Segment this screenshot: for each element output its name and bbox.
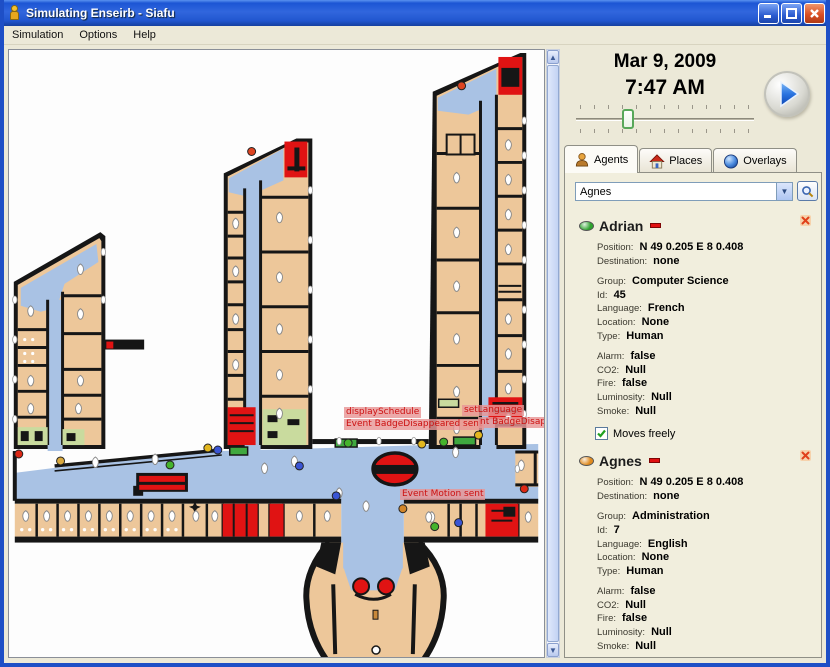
door-oval <box>412 437 416 445</box>
slider-thumb[interactable] <box>622 109 634 129</box>
agent-header: Adrian <box>579 217 815 234</box>
door-oval <box>515 465 519 473</box>
menu-simulation[interactable]: Simulation <box>4 27 71 43</box>
door-marker <box>148 511 154 522</box>
door-marker <box>44 511 50 522</box>
door-marker <box>65 511 71 522</box>
map-event-label: Event Motion sent <box>400 489 485 500</box>
moves-freely-checkbox[interactable] <box>595 427 608 440</box>
door-marker <box>296 511 302 522</box>
agent-dot[interactable] <box>431 523 439 531</box>
door-oval <box>522 187 526 195</box>
agent-field-row: Smoke:Null <box>597 640 815 654</box>
door-marker <box>233 218 239 229</box>
tab-agents[interactable]: Agents <box>564 145 638 173</box>
menu-help[interactable]: Help <box>125 27 164 43</box>
person-icon <box>574 152 590 167</box>
agent-field-row: Luminosity:Null <box>597 626 815 640</box>
door-marker <box>505 349 511 360</box>
door-oval <box>522 221 526 229</box>
agent-selector-value: Agnes <box>576 186 776 198</box>
door-marker <box>233 359 239 370</box>
agent-dot[interactable] <box>57 457 65 465</box>
close-agent-icon[interactable] <box>800 450 811 461</box>
agent-dot[interactable] <box>204 444 212 452</box>
title-bar[interactable]: Simulating Enseirb - Siafu <box>0 0 830 26</box>
door-marker <box>28 375 34 386</box>
slider-ticks-top <box>580 105 750 109</box>
door-marker <box>106 511 112 522</box>
door-marker <box>363 501 369 512</box>
agent-field-row: Fire:false <box>597 377 815 391</box>
simulation-time: 7:47 AM <box>574 76 756 100</box>
door-marker <box>505 383 511 394</box>
door-oval <box>308 336 312 344</box>
maximize-button-icon[interactable] <box>781 3 802 24</box>
door-oval <box>308 386 312 394</box>
door-marker <box>127 511 133 522</box>
door-marker <box>505 140 511 151</box>
simulation-map[interactable]: displayScheduleEvent BadgeDisappeared se… <box>8 49 545 658</box>
door-marker <box>276 369 282 380</box>
agent-field-row: Destination:none <box>597 490 815 504</box>
agent-field-row: Position:N 49 0.205 E 8 0.408 <box>597 476 815 490</box>
slider-ticks-bottom <box>580 129 750 133</box>
door-marker <box>525 512 531 523</box>
agent-dot[interactable] <box>344 439 352 447</box>
map-event-label: Event BadgeDisappeared sent <box>344 419 484 430</box>
agent-fields: Position:N 49 0.205 E 8 0.408Destination… <box>579 469 815 653</box>
agent-field-row: Id:45 <box>597 289 815 303</box>
window-title: Simulating Enseirb - Siafu <box>26 6 175 20</box>
door-oval <box>13 415 17 423</box>
door-oval <box>337 437 341 445</box>
chevron-down-icon[interactable]: ▼ <box>776 183 792 200</box>
agent-dot[interactable] <box>520 485 528 493</box>
door-marker <box>233 266 239 277</box>
door-marker <box>453 447 459 458</box>
tab-agents-label: Agents <box>594 154 628 166</box>
tab-places-label: Places <box>669 155 702 167</box>
tab-bar: Agents Places Overlays <box>564 145 822 173</box>
door-marker <box>233 314 239 325</box>
agent-dot[interactable] <box>295 462 303 470</box>
door-oval <box>101 296 105 304</box>
agent-dot[interactable] <box>440 438 448 446</box>
door-marker <box>77 375 83 386</box>
agent-running-badge <box>650 223 661 228</box>
moves-freely-row: Moves freely <box>579 425 815 442</box>
agent-card-adrian: Adrian Position:N 49 0.205 E 8 0.408Dest… <box>565 209 821 444</box>
door-marker <box>505 314 511 325</box>
control-panel: Mar 9, 2009 7:47 AM Agents <box>560 45 826 663</box>
agent-fields: Position:N 49 0.205 E 8 0.408Destination… <box>579 234 815 418</box>
map-vertical-scrollbar[interactable]: ▲ ▼ <box>546 49 560 658</box>
agent-header: Agnes <box>579 452 815 469</box>
agent-status-icon <box>579 221 594 231</box>
menu-options[interactable]: Options <box>71 27 125 43</box>
agent-field-row: CO2:Null <box>597 599 815 613</box>
play-button[interactable] <box>764 71 810 117</box>
map-event-label: nt BadgeDisapp <box>478 417 545 428</box>
agent-dot[interactable] <box>399 505 407 513</box>
door-marker <box>77 309 83 320</box>
door-oval <box>101 248 105 256</box>
door-oval <box>13 296 17 304</box>
moves-freely-label: Moves freely <box>613 428 675 440</box>
door-marker <box>505 244 511 255</box>
door-marker <box>85 511 91 522</box>
agent-dot[interactable] <box>166 461 174 469</box>
search-button[interactable] <box>797 181 818 201</box>
agent-field-row: Language:French <box>597 302 815 316</box>
agent-running-badge <box>649 458 660 463</box>
agent-status-icon <box>579 456 594 466</box>
door-oval <box>522 341 526 349</box>
minimize-button-icon[interactable] <box>758 3 779 24</box>
app-window: Simulating Enseirb - Siafu Simulation Op… <box>0 0 830 667</box>
agent-card-agnes: Agnes Position:N 49 0.205 E 8 0.408Desti… <box>565 444 821 657</box>
door-oval <box>522 306 526 314</box>
agent-field-row: Alarm:false <box>597 585 815 599</box>
door-oval <box>308 286 312 294</box>
slider-track[interactable] <box>576 118 754 121</box>
door-marker <box>324 511 330 522</box>
door-marker <box>77 264 83 275</box>
agent-field-row: Alarm:false <box>597 350 815 364</box>
agent-dot[interactable] <box>332 492 340 500</box>
search-icon <box>801 185 814 198</box>
tab-places[interactable]: Places <box>639 148 712 173</box>
door-marker <box>276 324 282 335</box>
agent-dot[interactable] <box>475 431 483 439</box>
time-speed-slider[interactable] <box>576 103 754 135</box>
scroll-down-icon[interactable]: ▼ <box>547 643 559 657</box>
agent-field-row: Location:None <box>597 551 815 565</box>
close-agent-icon[interactable] <box>800 215 811 226</box>
door-marker <box>28 306 34 317</box>
agent-field-row: CO2:Null <box>597 364 815 378</box>
door-marker <box>276 212 282 223</box>
agent-field-row: Type:Human <box>597 330 815 344</box>
agents-tab-panel: Agnes ▼ Adrian <box>564 172 822 658</box>
close-button-icon[interactable] <box>804 3 825 24</box>
scroll-up-icon[interactable]: ▲ <box>547 50 559 64</box>
agent-field-row: Id:7 <box>597 524 815 538</box>
agent-field-row: Group:Computer Science <box>597 275 815 289</box>
agent-field-row: Type:Human <box>597 565 815 579</box>
door-oval <box>522 256 526 264</box>
door-marker <box>276 272 282 283</box>
door-marker <box>454 386 460 397</box>
door-oval <box>13 376 17 384</box>
door-marker <box>505 209 511 220</box>
agent-name: Adrian <box>599 218 643 234</box>
agent-dot[interactable] <box>455 519 463 527</box>
door-oval <box>308 187 312 195</box>
door-marker <box>426 512 432 523</box>
agent-field-row: Group:Administration <box>597 510 815 524</box>
agent-field-row: Smoke:Null <box>597 405 815 419</box>
door-oval <box>522 152 526 160</box>
agent-list: Adrian Position:N 49 0.205 E 8 0.408Dest… <box>565 209 821 657</box>
map-event-label: setLanguage <box>462 405 524 416</box>
tab-overlays[interactable]: Overlays <box>713 148 796 173</box>
agent-field-row: Fire:false <box>597 612 815 626</box>
agent-field-row: Luminosity:Null <box>597 391 815 405</box>
door-oval <box>377 437 381 445</box>
door-marker <box>454 172 460 183</box>
agent-dot[interactable] <box>418 440 426 448</box>
door-marker <box>92 457 98 468</box>
door-marker <box>193 511 199 522</box>
door-oval <box>308 236 312 244</box>
agent-dot[interactable] <box>15 450 23 458</box>
door-oval <box>522 376 526 384</box>
play-icon <box>772 79 802 109</box>
agent-dot[interactable] <box>458 82 466 90</box>
agent-dot[interactable] <box>214 446 222 454</box>
door-marker <box>454 227 460 238</box>
agent-field-row: Destination:none <box>597 255 815 269</box>
door-marker <box>454 281 460 292</box>
door-marker <box>454 334 460 345</box>
door-marker <box>23 511 29 522</box>
agent-field-row: Location:None <box>597 316 815 330</box>
door-marker <box>28 403 34 414</box>
door-marker <box>262 463 268 474</box>
agent-field-row: Language:English <box>597 538 815 552</box>
agent-dot[interactable] <box>248 148 256 156</box>
door-oval <box>522 117 526 125</box>
door-marker <box>212 511 218 522</box>
house-icon <box>649 154 665 169</box>
agent-field-row: Position:N 49 0.205 E 8 0.408 <box>597 241 815 255</box>
door-marker <box>75 403 81 414</box>
agent-name: Agnes <box>599 453 642 469</box>
map-event-label: displaySchedule <box>344 407 421 418</box>
sphere-icon <box>723 154 739 169</box>
agent-selector-combobox[interactable]: Agnes ▼ <box>575 182 793 201</box>
floorplan-canvas <box>9 50 544 657</box>
simulation-date: Mar 9, 2009 <box>574 51 756 73</box>
door-marker <box>169 511 175 522</box>
door-marker <box>276 408 282 419</box>
door-oval <box>13 336 17 344</box>
door-marker <box>152 454 158 465</box>
menu-bar: Simulation Options Help <box>4 26 826 45</box>
scrollbar-thumb[interactable] <box>547 65 559 642</box>
app-icon <box>7 5 21 21</box>
door-marker <box>505 174 511 185</box>
tab-overlays-label: Overlays <box>743 155 786 167</box>
